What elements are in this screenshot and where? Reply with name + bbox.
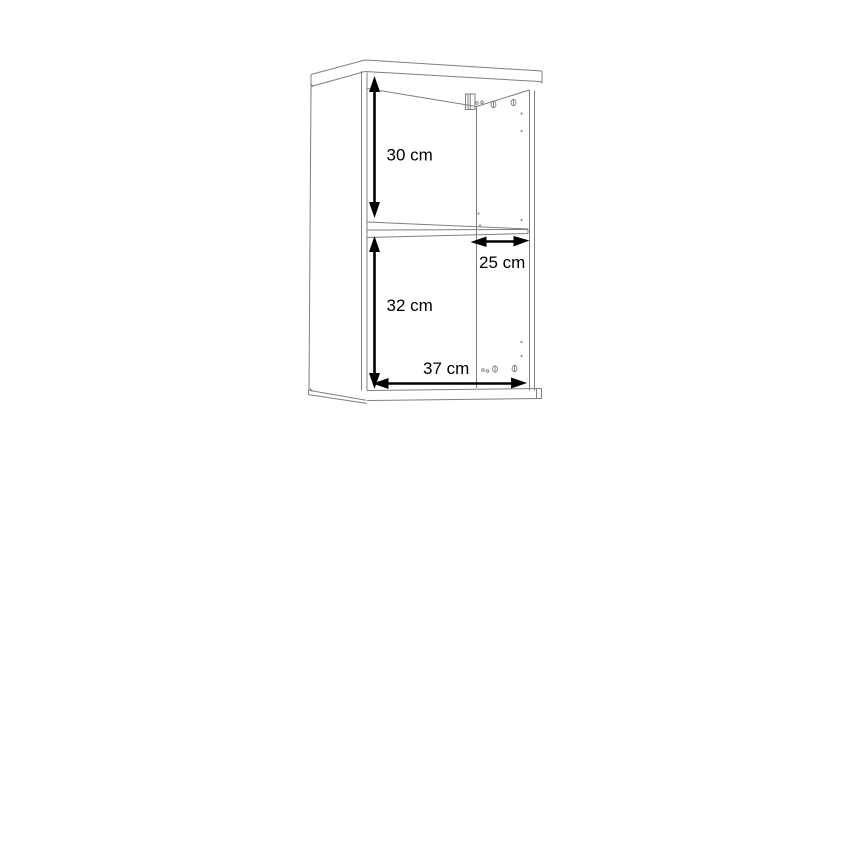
dimension-label-lower-height: 32 cm	[387, 296, 433, 315]
pin-dot	[478, 213, 480, 215]
shelf-pin-holes	[476, 99, 523, 372]
cabinet-outline	[309, 60, 543, 403]
arrow-head-down	[369, 202, 380, 218]
dimension-labels: 30 cm 25 cm 32 cm 37 cm	[387, 146, 526, 379]
cabinet-dimension-diagram: 30 cm 25 cm 32 cm 37 cm	[0, 0, 868, 868]
shelf-top-front-edge	[367, 230, 528, 231]
top-panel-right-cap	[540, 71, 543, 83]
pin-dot	[521, 355, 523, 357]
pin-dot	[521, 341, 523, 343]
dimension-arrow-25cm	[471, 236, 530, 247]
pin-dot	[521, 113, 523, 115]
dimension-label-interior-width: 37 cm	[423, 359, 469, 378]
pin-dot	[521, 130, 523, 132]
dimension-arrow-30cm	[369, 76, 380, 218]
shelf-bottom-edge	[367, 234, 528, 238]
pin-dot	[521, 219, 523, 221]
arrow-head-left	[471, 237, 487, 248]
pin-dot	[479, 225, 481, 227]
dimension-arrow-37cm	[373, 378, 528, 390]
arrow-head-down	[369, 373, 380, 389]
top-panel-top-edge	[311, 60, 542, 75]
shelf-top-back-edge	[367, 222, 528, 229]
dimension-arrow-32cm	[369, 236, 380, 389]
top-panel-front-edge	[311, 72, 540, 87]
diagram-canvas: 30 cm 25 cm 32 cm 37 cm	[0, 0, 868, 868]
bottom-panel-top-edge	[367, 389, 540, 391]
arrow-head-up	[369, 236, 380, 252]
pin-hole	[481, 101, 484, 104]
arrow-head-up	[369, 76, 380, 92]
arrow-head-right	[514, 236, 530, 247]
pin-hole	[486, 370, 489, 373]
back-panel-top-edge	[367, 89, 477, 107]
bottom-panel-bottom-edge	[367, 399, 540, 401]
pin-hole	[482, 369, 485, 372]
left-panel-outer-edge	[309, 87, 311, 391]
pin-hole	[476, 102, 479, 105]
dimension-label-upper-height: 30 cm	[387, 146, 433, 165]
arrow-head-right	[511, 378, 527, 389]
dimension-label-shelf-depth: 25 cm	[479, 253, 525, 272]
right-panel-top-inner-edge	[477, 90, 530, 107]
